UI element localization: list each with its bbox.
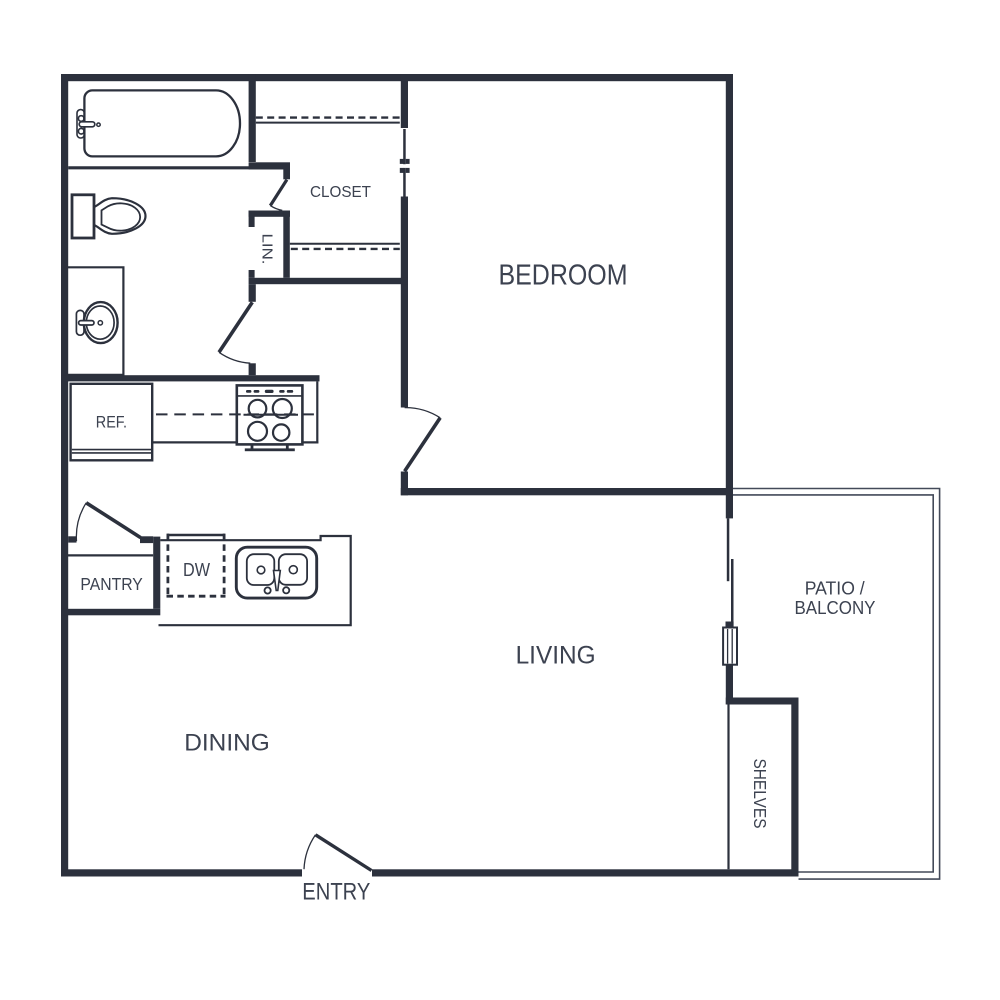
svg-text:PANTRY: PANTRY: [80, 574, 143, 594]
svg-text:DINING: DINING: [184, 729, 270, 756]
svg-text:PATIO /: PATIO /: [805, 578, 866, 598]
svg-text:BALCONY: BALCONY: [795, 598, 876, 618]
svg-text:REF.: REF.: [96, 413, 127, 432]
svg-text:LIVING: LIVING: [516, 643, 596, 670]
svg-text:LIN.: LIN.: [259, 234, 276, 265]
svg-text:DW: DW: [183, 560, 210, 580]
svg-text:CLOSET: CLOSET: [310, 184, 371, 201]
svg-text:BEDROOM: BEDROOM: [499, 260, 628, 292]
svg-text:SHELVES: SHELVES: [750, 759, 770, 829]
svg-text:ENTRY: ENTRY: [302, 878, 370, 905]
